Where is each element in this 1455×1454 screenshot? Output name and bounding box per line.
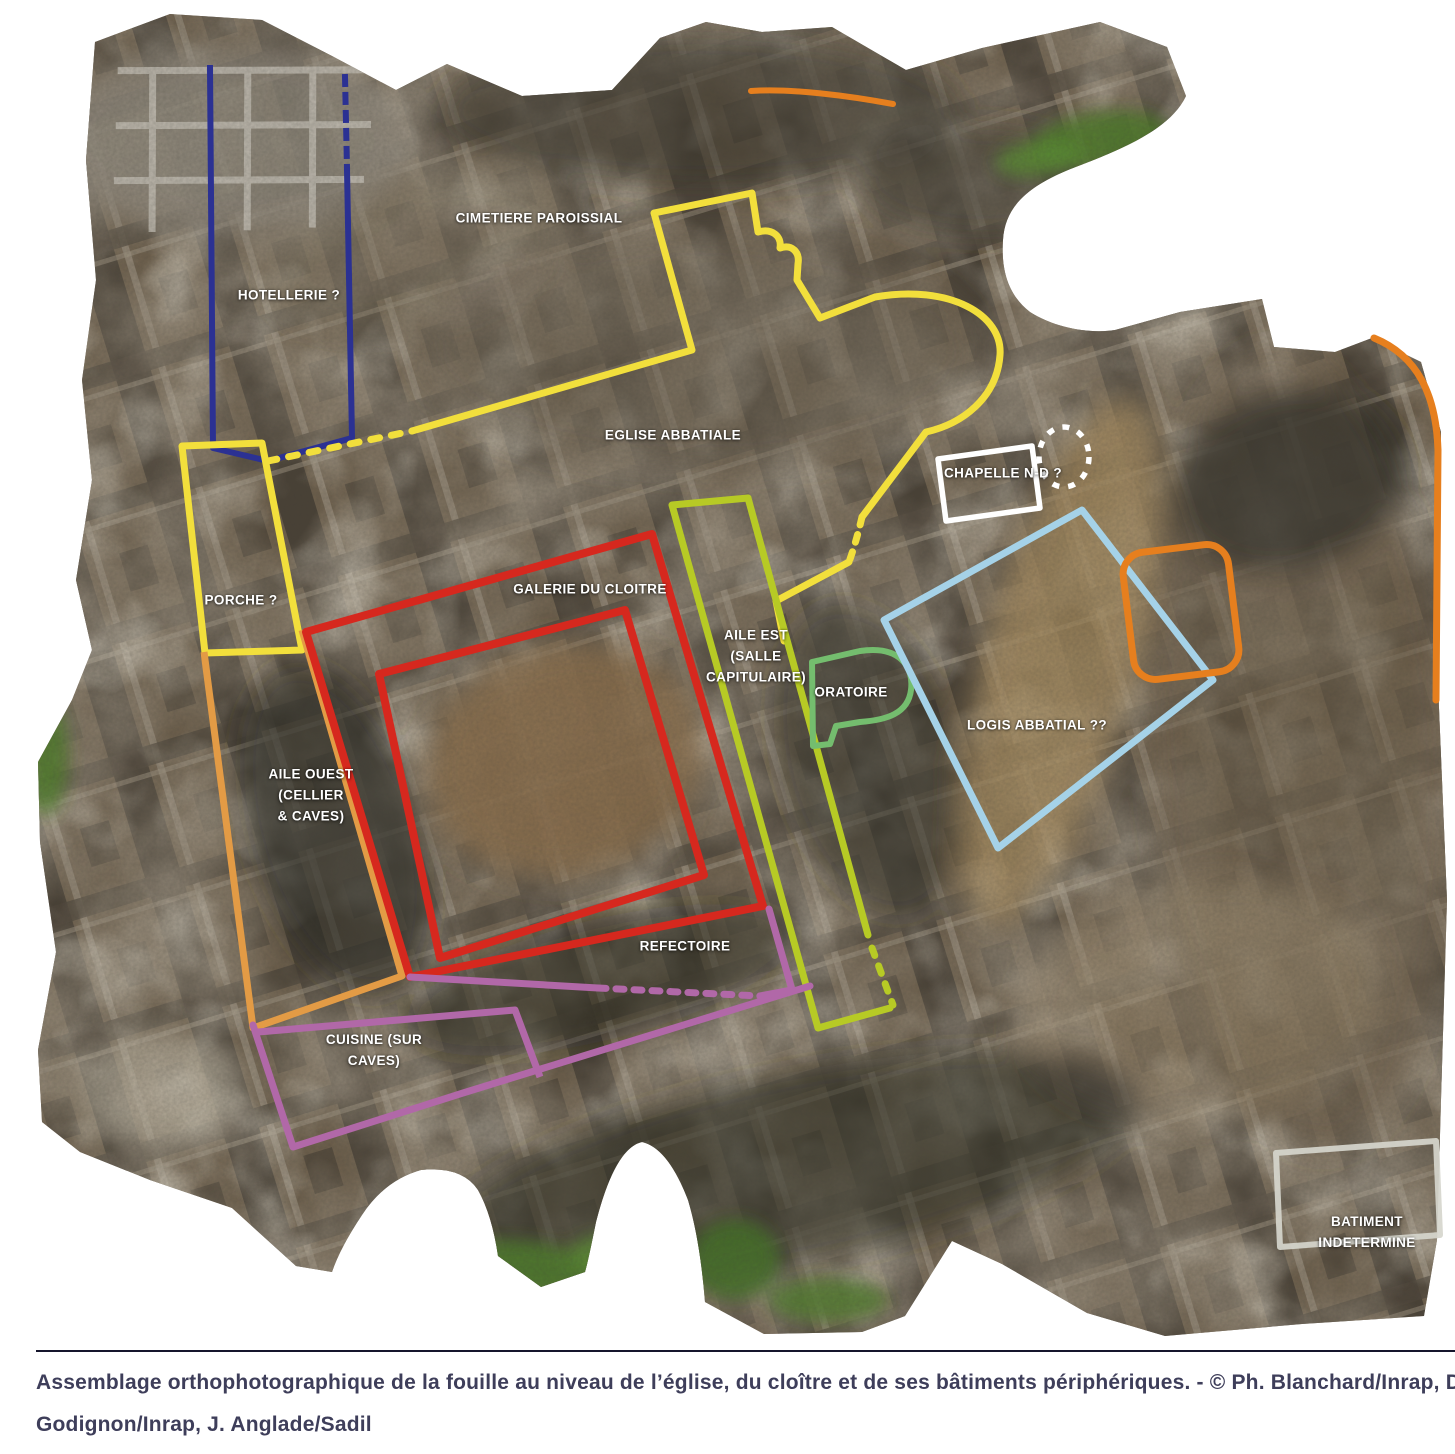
- area-label-eglise-abbatiale: EGLISE ABBATIALE: [605, 426, 741, 447]
- area-label-hotellerie: HOTELLERIE ?: [238, 286, 340, 307]
- page: CIMETIERE PAROISSIAL HOTELLERIE ? EGLISE…: [0, 0, 1455, 1454]
- area-label-refectoire: REFECTOIRE: [640, 937, 731, 958]
- area-label-oratoire: ORATOIRE: [814, 683, 887, 704]
- area-label-cimetiere-paroissial: CIMETIERE PAROISSIAL: [456, 209, 623, 230]
- area-label-cuisine: CUISINE (SUR CAVES): [326, 1030, 422, 1072]
- caption-line1: Assemblage orthophotographique de la fou…: [36, 1362, 1455, 1404]
- area-label-aile-est: AILE EST (SALLE CAPITULAIRE): [706, 626, 806, 689]
- area-label-logis-abbatial: LOGIS ABBATIAL ??: [967, 716, 1107, 737]
- area-label-porche: PORCHE ?: [205, 591, 278, 612]
- caption-divider: [36, 1350, 1455, 1352]
- area-label-chapelle-nd: CHAPELLE N-D ?: [944, 464, 1062, 485]
- figure-caption: Assemblage orthophotographique de la fou…: [36, 1362, 1455, 1446]
- excavation-orthophoto-figure: CIMETIERE PAROISSIAL HOTELLERIE ? EGLISE…: [0, 0, 1455, 1345]
- area-label-batiment-indetermine: BATIMENT INDETERMINE: [1318, 1212, 1415, 1254]
- caption-line2: Godignon/Inrap, J. Anglade/Sadil: [36, 1404, 1455, 1446]
- area-label-aile-ouest: AILE OUEST (CELLIER & CAVES): [268, 765, 353, 828]
- area-label-galerie-du-cloitre: GALERIE DU CLOITRE: [513, 580, 666, 601]
